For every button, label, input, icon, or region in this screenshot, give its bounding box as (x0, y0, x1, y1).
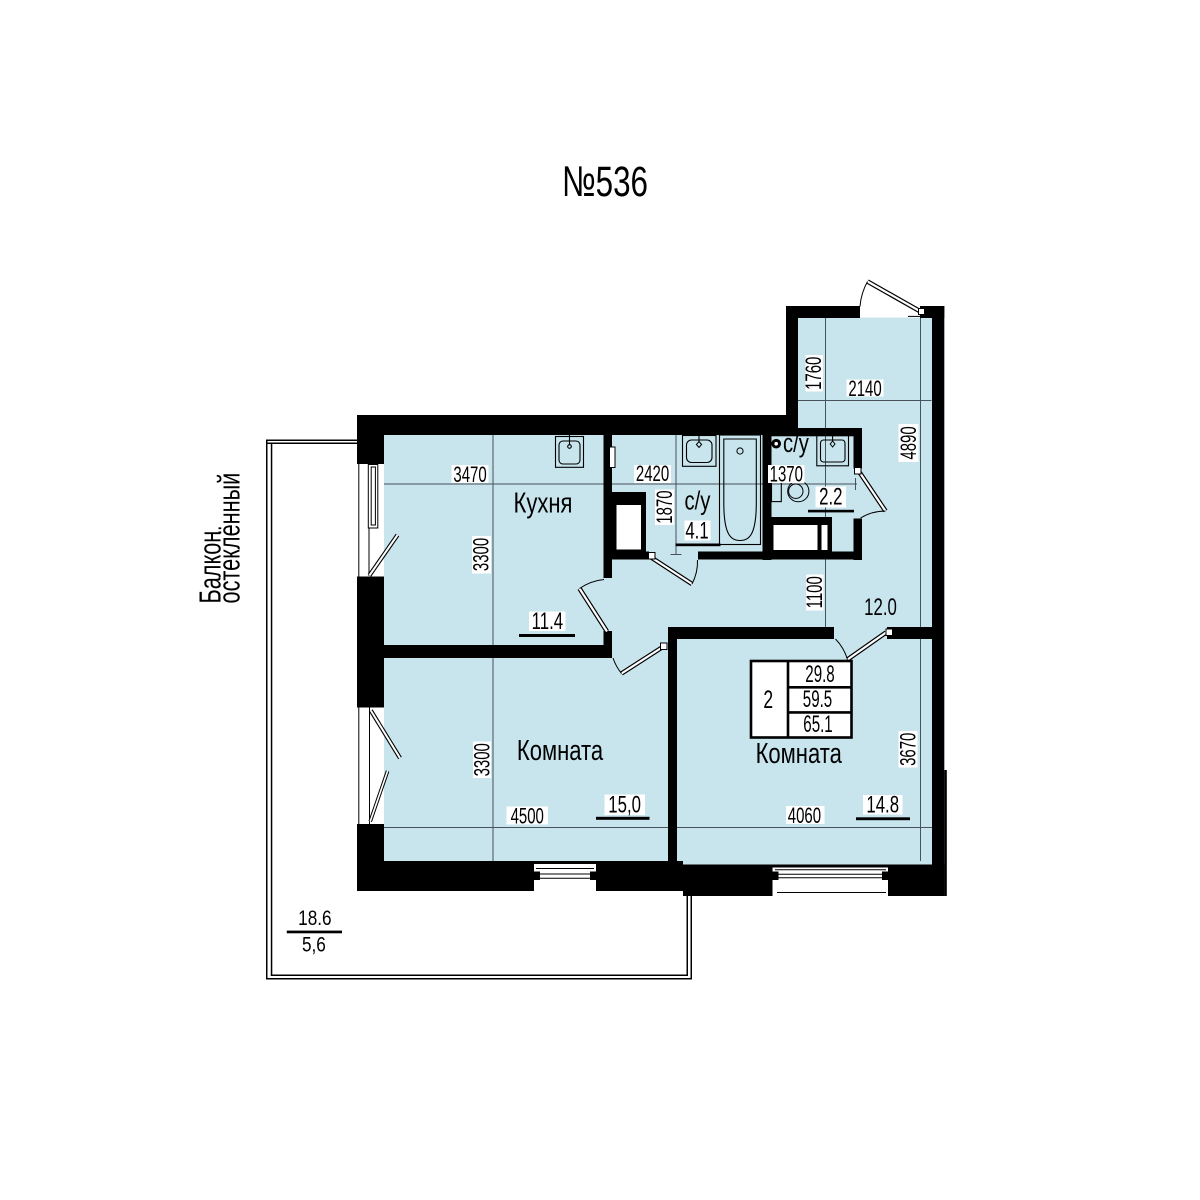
svg-text:3300: 3300 (470, 743, 495, 776)
svg-text:2140: 2140 (848, 376, 881, 401)
svg-text:Комната: Комната (517, 735, 604, 767)
svg-text:1870: 1870 (652, 490, 677, 523)
svg-text:3670: 3670 (896, 733, 921, 766)
svg-text:Комната: Комната (756, 738, 843, 770)
svg-text:4890: 4890 (896, 426, 921, 459)
svg-text:29.8: 29.8 (805, 662, 834, 688)
svg-text:2: 2 (763, 685, 773, 714)
svg-text:3300: 3300 (469, 538, 494, 571)
svg-text:4.1: 4.1 (685, 518, 708, 545)
svg-text:3470: 3470 (453, 462, 486, 487)
svg-text:5,6: 5,6 (302, 933, 326, 957)
svg-text:с/у: с/у (684, 486, 710, 515)
svg-text:с/у: с/у (783, 429, 809, 458)
svg-text:4500: 4500 (511, 804, 544, 829)
svg-text:2.2: 2.2 (819, 484, 842, 511)
svg-text:1370: 1370 (770, 462, 803, 487)
svg-text:4060: 4060 (788, 803, 821, 828)
svg-text:12.0: 12.0 (864, 594, 897, 621)
svg-text:18.6: 18.6 (298, 906, 331, 930)
svg-text:Кухня: Кухня (514, 488, 573, 520)
svg-text:№536: №536 (562, 157, 648, 205)
svg-text:65.1: 65.1 (803, 712, 832, 738)
svg-text:остеклённый: остеклённый (212, 473, 247, 604)
svg-text:15,0: 15,0 (608, 792, 641, 819)
svg-text:1100: 1100 (802, 576, 827, 608)
svg-text:11.4: 11.4 (532, 608, 563, 635)
svg-text:2420: 2420 (636, 461, 669, 486)
svg-text:59.5: 59.5 (803, 686, 832, 712)
svg-text:14.8: 14.8 (866, 792, 899, 819)
svg-text:1760: 1760 (801, 357, 826, 390)
